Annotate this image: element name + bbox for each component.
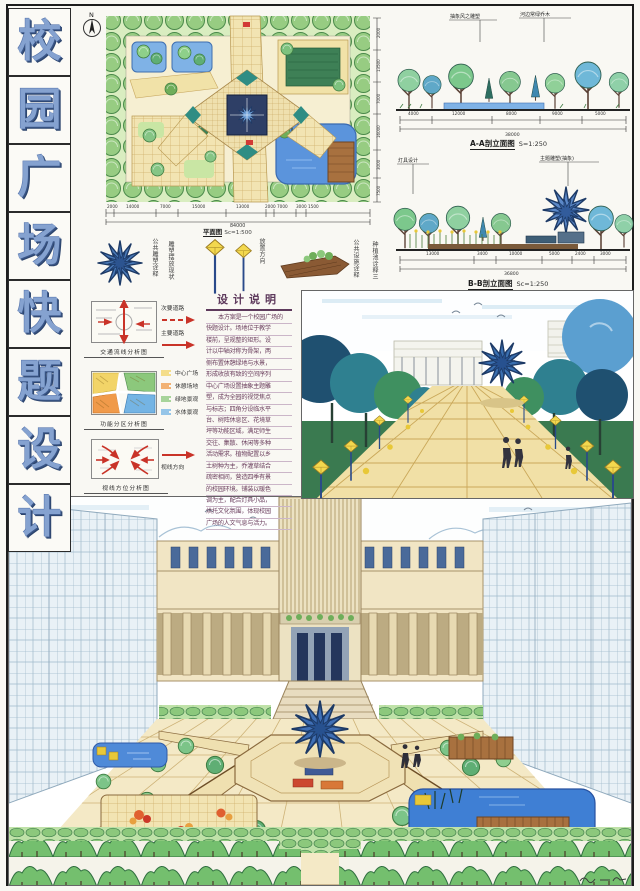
section-aa-drawing: 抽象风之雕塑 河边常绿乔木 4000 12000 8000 9000 5000 … [392, 8, 634, 138]
svg-text:河边常绿乔木: 河边常绿乔木 [520, 11, 550, 18]
design-notes-title: 设计说明 [206, 291, 292, 311]
master-plan-drawing: N [80, 10, 388, 228]
section-marker-b [246, 140, 253, 145]
sight-caption: 视线方位分析图 [84, 483, 168, 494]
dashed-arrow-icon [161, 315, 197, 325]
zoning-swatch-plaza [160, 369, 172, 377]
detail-caption: 雕塑摆放现状 [167, 241, 173, 293]
shrub-bed [159, 705, 271, 720]
traffic-analysis-diagram [90, 300, 158, 344]
svg-text:8000: 8000 [506, 111, 517, 116]
detail-caption: 放置方向 [258, 238, 264, 292]
section-bb-callouts: 灯具设计 主题雕塑(抽象) [398, 155, 574, 164]
section-aa-dimensions [400, 116, 626, 132]
detail-sketches [85, 230, 390, 296]
detail-caption: 公共设施诠释 [352, 239, 358, 293]
pergola-deck [449, 733, 513, 759]
svg-text:抽象风之雕塑: 抽象风之雕塑 [450, 13, 480, 20]
section-aa-callouts: 抽象风之雕塑 河边常绿乔木 [450, 11, 550, 20]
plan-pond-topleft [130, 42, 218, 98]
entry-steps [273, 681, 377, 719]
title-char-box: 园 [8, 76, 71, 144]
title-char-box: 快 [8, 280, 71, 348]
svg-text:3400: 3400 [477, 251, 488, 256]
signature-scribble [578, 873, 630, 885]
zoning-swatch-rest [160, 382, 172, 390]
svg-text:3000: 3000 [600, 251, 611, 256]
foreground-hedge-left [9, 841, 279, 885]
svg-text:9000: 9000 [552, 111, 563, 116]
presentation-board: 校 园 广 场 快 题 设 计 N [0, 0, 640, 891]
section-bb-drawing: 灯具设计 主题雕塑(抽象) 13000 3400 10000 5000 2400… [392, 152, 634, 276]
svg-text:13000: 13000 [426, 251, 440, 256]
plan-dimensions-bottom [106, 209, 370, 225]
solid-arrow-icon [161, 340, 197, 350]
section-marker-a [243, 22, 250, 27]
design-notes-line: 本方案是一个校园广场的 [206, 313, 292, 324]
sculpture-shadow [480, 398, 524, 408]
sculpture-shadow [294, 757, 346, 769]
traffic-legend-primary: 主要道路 [161, 328, 184, 337]
sight-arrow-icon [161, 450, 197, 460]
svg-text:14000: 14000 [126, 204, 140, 209]
birdseye-perspective-drawing [9, 497, 631, 885]
title-char: 校 [18, 20, 62, 64]
svg-text:10000: 10000 [509, 251, 523, 256]
bench [526, 236, 556, 243]
north-arrow-icon: N [84, 11, 101, 37]
title-char-box: 计 [8, 484, 71, 552]
svg-text:7000: 7000 [376, 93, 381, 104]
title-char-box: 场 [8, 212, 71, 280]
section-bb-dimensions [400, 256, 626, 272]
title-char-box: 设 [8, 416, 71, 484]
title-char-box: 校 [8, 8, 71, 76]
svg-text:3000: 3000 [376, 159, 381, 170]
svg-text:12000: 12000 [452, 111, 466, 116]
svg-text:N: N [89, 11, 94, 19]
plan-garden-topright [278, 40, 348, 94]
svg-text:4000: 4000 [408, 111, 419, 116]
svg-text:7000: 7000 [277, 204, 288, 209]
svg-text:13500: 13500 [376, 59, 381, 72]
plan-dimensions-right [373, 18, 381, 202]
svg-text:7500: 7500 [376, 185, 381, 196]
svg-text:2400: 2400 [575, 251, 586, 256]
traffic-legend-secondary: 次要道路 [161, 303, 184, 312]
svg-text:2000: 2000 [107, 204, 118, 209]
zoning-legend-label: 中心广场 [175, 368, 198, 377]
svg-text:2000: 2000 [376, 27, 381, 38]
detail-caption: 种植池诠释三 [371, 241, 377, 293]
pond-left [93, 743, 167, 767]
zoning-legend-label: 水体景观 [175, 407, 198, 416]
svg-text:5000: 5000 [549, 251, 560, 256]
title-char-box: 题 [8, 348, 71, 416]
svg-text:主题雕塑(抽象): 主题雕塑(抽象) [540, 155, 574, 162]
traffic-caption: 交通流线分析图 [84, 347, 164, 358]
section-water [444, 103, 544, 110]
zoning-analysis-diagram [90, 370, 158, 416]
zoning-swatch-water [160, 408, 172, 416]
sight-legend-label: 视线方向 [161, 462, 184, 471]
planter-sketch [281, 250, 349, 278]
svg-text:1500: 1500 [308, 204, 319, 209]
design-notes: 设计说明 本方案是一个校园广场的 快题设计。场地位于教学 楼前，呈规整的矩形。设… [206, 291, 292, 505]
sightline-analysis-diagram [90, 438, 160, 480]
zoning-legend-label: 绿地景观 [175, 394, 198, 403]
svg-text:15000: 15000 [192, 204, 206, 209]
svg-text:5000: 5000 [595, 111, 606, 116]
svg-text:16000: 16000 [376, 125, 381, 138]
detail-caption: 公共雕塑诠释 [151, 238, 157, 292]
plan-label: 平面图 Sc=1:500 [203, 227, 252, 236]
svg-text:灯具设计: 灯具设计 [398, 157, 418, 164]
axis-perspective-drawing [302, 291, 633, 498]
svg-text:3000: 3000 [296, 204, 307, 209]
svg-text:7000: 7000 [160, 204, 171, 209]
svg-text:13000: 13000 [236, 204, 250, 209]
cube-lamp-sketch [206, 240, 224, 294]
flower-bed [293, 779, 313, 787]
svg-text:36800: 36800 [504, 271, 519, 276]
zoning-legend-label: 休憩场地 [175, 381, 198, 390]
svg-text:2000: 2000 [265, 204, 276, 209]
section-bb-label: B-B剖立面图Sc=1:250 [468, 278, 548, 289]
zoning-caption: 功能分区分析图 [84, 419, 164, 430]
section-aa-label: A-A剖立面图S=1:250 [470, 138, 547, 149]
zoning-swatch-green [160, 395, 172, 403]
title-char-box: 广 [8, 144, 71, 212]
